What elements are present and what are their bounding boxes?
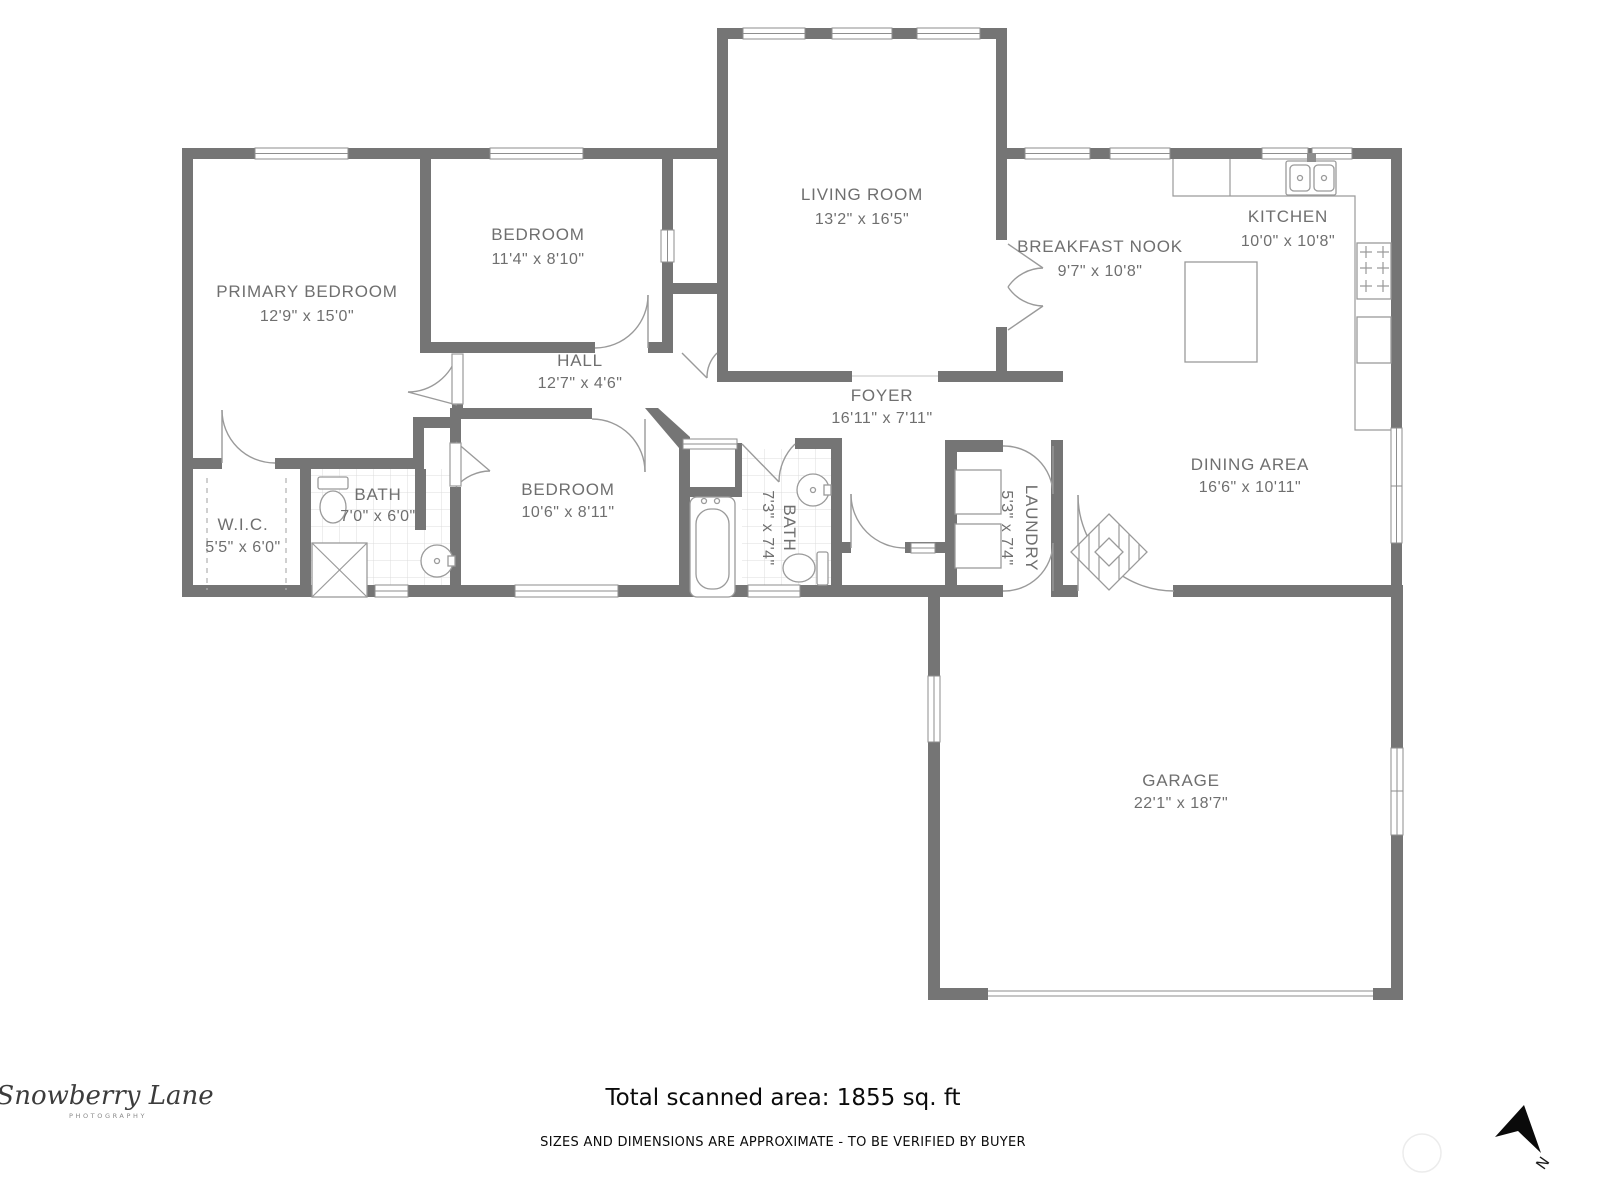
window xyxy=(1312,148,1352,159)
door-wic xyxy=(222,410,275,463)
room-labels: PRIMARY BEDROOM 12'9" x 15'0" BEDROOM 11… xyxy=(205,185,1335,812)
door-primary-bedroom xyxy=(408,354,457,405)
footer: Total scanned area: 1855 sq. ft SIZES AN… xyxy=(540,1085,1026,1150)
label-bedroom-3: BEDROOM xyxy=(521,480,614,499)
window xyxy=(1110,148,1170,159)
window xyxy=(748,585,800,597)
window xyxy=(1391,748,1403,835)
dims-primary-bedroom: 12'9" x 15'0" xyxy=(260,308,354,325)
label-wic: W.I.C. xyxy=(217,515,268,534)
toilet xyxy=(783,552,828,585)
label-bath-2: BATH xyxy=(780,504,799,551)
label-hall: HALL xyxy=(557,351,603,370)
label-garage: GARAGE xyxy=(1142,771,1220,790)
disclaimer-text: SIZES AND DIMENSIONS ARE APPROXIMATE - T… xyxy=(540,1135,1026,1150)
bathtub xyxy=(690,497,735,597)
window xyxy=(1262,148,1308,159)
label-kitchen: KITCHEN xyxy=(1248,207,1328,226)
dims-breakfast-nook: 9'7" x 10'8" xyxy=(1058,263,1143,280)
dims-bedroom-2: 11'4" x 8'10" xyxy=(491,251,584,268)
compass: N xyxy=(1403,1105,1553,1173)
logo-script-text: Snowberry Lane xyxy=(0,1081,214,1111)
photographer-logo: Snowberry Lane PHOTOGRAPHY xyxy=(0,1081,214,1120)
logo-sub-text: PHOTOGRAPHY xyxy=(69,1112,147,1120)
door-mud-hall xyxy=(851,494,905,548)
window xyxy=(375,585,408,597)
compass-circle-watermark xyxy=(1403,1134,1441,1172)
closet-slider xyxy=(661,230,674,262)
dims-wic: 5'5" x 6'0" xyxy=(205,539,280,556)
floor-plan-drawing: PRIMARY BEDROOM 12'9" x 15'0" BEDROOM 11… xyxy=(0,0,1600,1200)
dims-bath-2: 7'3" x 7'4" xyxy=(759,490,776,565)
dims-kitchen: 10'0" x 10'8" xyxy=(1241,233,1335,250)
kitchen-island xyxy=(1185,262,1257,362)
door-bedroom3 xyxy=(592,419,645,472)
dims-living-room: 13'2" x 16'5" xyxy=(815,211,909,228)
label-living-room: LIVING ROOM xyxy=(801,185,923,204)
dims-bath-1: 7'0" x 6'0" xyxy=(340,508,415,525)
door-bath1-leaf xyxy=(450,443,461,486)
stove xyxy=(1357,243,1391,299)
door-primary-leaf xyxy=(452,354,463,404)
window xyxy=(1391,428,1402,543)
door-hall-closet xyxy=(682,353,717,378)
dims-laundry: 5'3" x 7'4" xyxy=(998,490,1015,565)
floor-plan-page: PRIMARY BEDROOM 12'9" x 15'0" BEDROOM 11… xyxy=(0,0,1600,1200)
window xyxy=(928,676,940,742)
dims-bedroom-3: 10'6" x 8'11" xyxy=(521,504,614,521)
window xyxy=(917,28,980,39)
window xyxy=(490,148,583,159)
window xyxy=(743,28,805,39)
label-laundry: LAUNDRY xyxy=(1022,485,1041,572)
closet-rod-lines xyxy=(207,478,286,590)
french-doors-breakfast-nook xyxy=(1008,244,1043,330)
window xyxy=(515,585,618,597)
north-arrow-icon xyxy=(1495,1105,1541,1153)
label-breakfast-nook: BREAKFAST NOOK xyxy=(1017,237,1183,256)
dims-foyer: 16'11" x 7'11" xyxy=(831,410,932,427)
dims-garage: 22'1" x 18'7" xyxy=(1134,795,1228,812)
window xyxy=(255,148,348,159)
door-bedroom2 xyxy=(595,295,648,348)
compass-n-label: N xyxy=(1532,1153,1553,1173)
label-bedroom-2: BEDROOM xyxy=(491,225,584,244)
wall-passthrough xyxy=(911,543,935,553)
window xyxy=(1025,148,1090,159)
window xyxy=(832,28,892,39)
shower xyxy=(312,543,367,597)
label-bath-1: BATH xyxy=(354,485,401,504)
label-foyer: FOYER xyxy=(851,386,914,405)
label-dining-area: DINING AREA xyxy=(1191,455,1309,474)
washer xyxy=(955,470,1001,514)
total-area-text: Total scanned area: 1855 sq. ft xyxy=(604,1085,960,1111)
refrigerator xyxy=(1357,317,1391,363)
garage-door xyxy=(988,988,1373,1000)
dims-dining-area: 16'6" x 10'11" xyxy=(1199,479,1301,496)
label-primary-bedroom: PRIMARY BEDROOM xyxy=(216,282,397,301)
closet-slider xyxy=(683,439,737,449)
dims-hall: 12'7" x 4'6" xyxy=(538,375,623,392)
dryer xyxy=(955,524,1001,568)
